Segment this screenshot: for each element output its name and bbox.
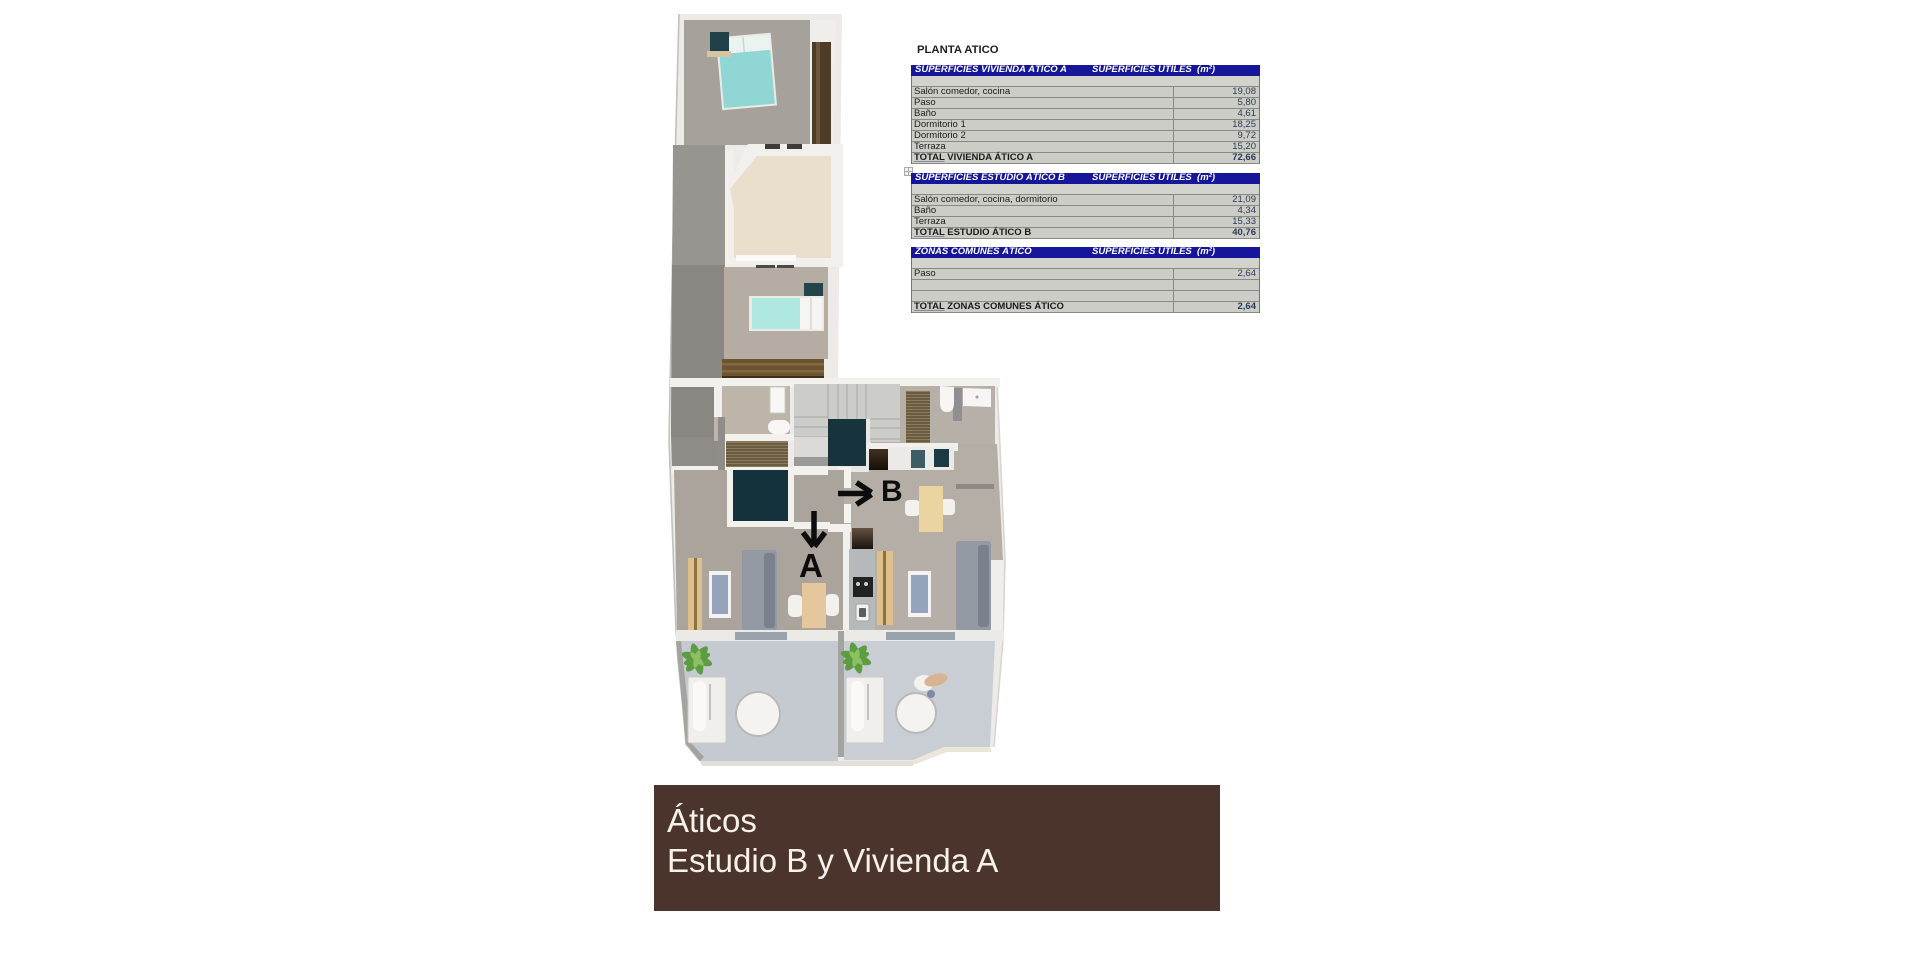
svg-text:B: B [881,475,903,508]
svg-text:A: A [799,547,823,584]
